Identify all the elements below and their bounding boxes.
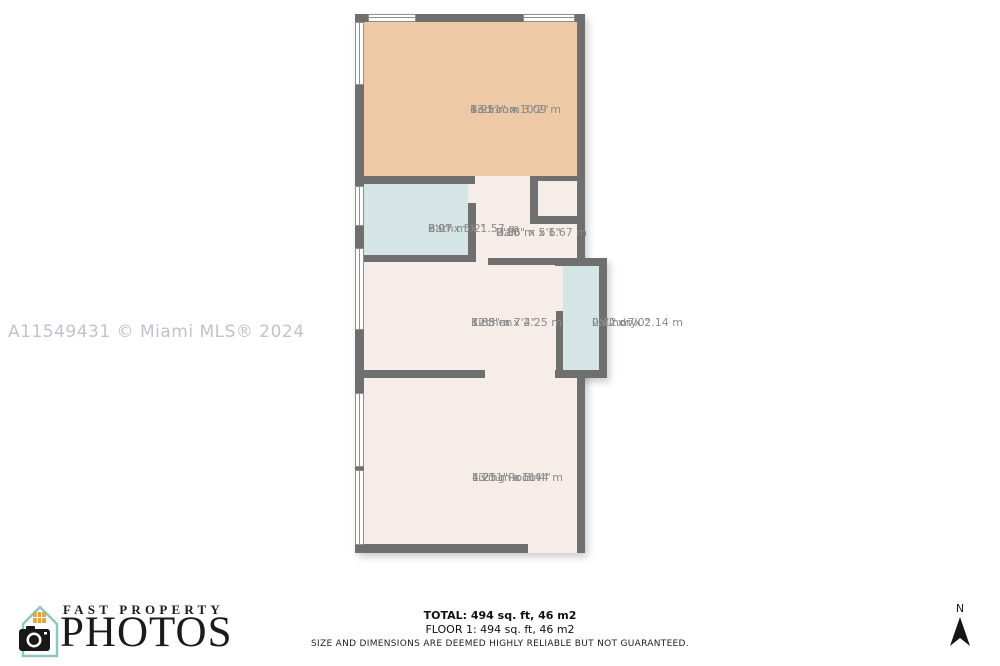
room-dims-m: 0.72 m x 2.14 m xyxy=(592,316,683,330)
room-dims-m: 0.86 m x 1.67 m xyxy=(496,226,587,240)
north-arrow-icon xyxy=(948,616,972,648)
window-bedroom-top-left xyxy=(368,14,416,22)
house-camera-icon xyxy=(18,600,62,660)
room-dims-m: 4.25 m x 3.09 m xyxy=(470,103,561,117)
wall-closet-bottom xyxy=(530,216,585,224)
window-living-left-2 xyxy=(355,470,364,545)
compass-label: N xyxy=(944,602,976,615)
window-bath-left xyxy=(355,186,364,226)
room-dims-m: 4.25 m x 3.44 m xyxy=(472,471,563,485)
floor-fill-entry xyxy=(528,544,577,553)
fast-property-photos-logo: FAST PROPERTY PHOTOS xyxy=(18,598,238,660)
mls-watermark: A11549431 © Miami MLS® 2024 xyxy=(8,322,305,342)
wall-right-lower xyxy=(577,378,585,553)
window-bedroom-top-right xyxy=(523,14,575,22)
bedroom-fill xyxy=(364,22,577,176)
north-compass: N xyxy=(944,602,976,648)
wall-bath-bottom xyxy=(364,255,476,262)
window-living-left-1 xyxy=(355,393,364,467)
logo-line2: PHOTOS xyxy=(60,610,232,656)
wall-bedroom-bath xyxy=(364,176,475,184)
bath-fill xyxy=(364,184,468,255)
wall-closet-stub xyxy=(530,176,538,218)
wall-bottom xyxy=(355,544,528,553)
floor-plan: Bedroom 13'11" x 10'2" 4.25 m x 3.09 m B… xyxy=(355,14,607,553)
window-kitchen-left xyxy=(355,248,364,330)
room-dims-m: 3.85 m x 2.25 m xyxy=(471,316,562,330)
wall-kitchen-living xyxy=(364,370,485,378)
window-bedroom-left xyxy=(355,22,364,85)
